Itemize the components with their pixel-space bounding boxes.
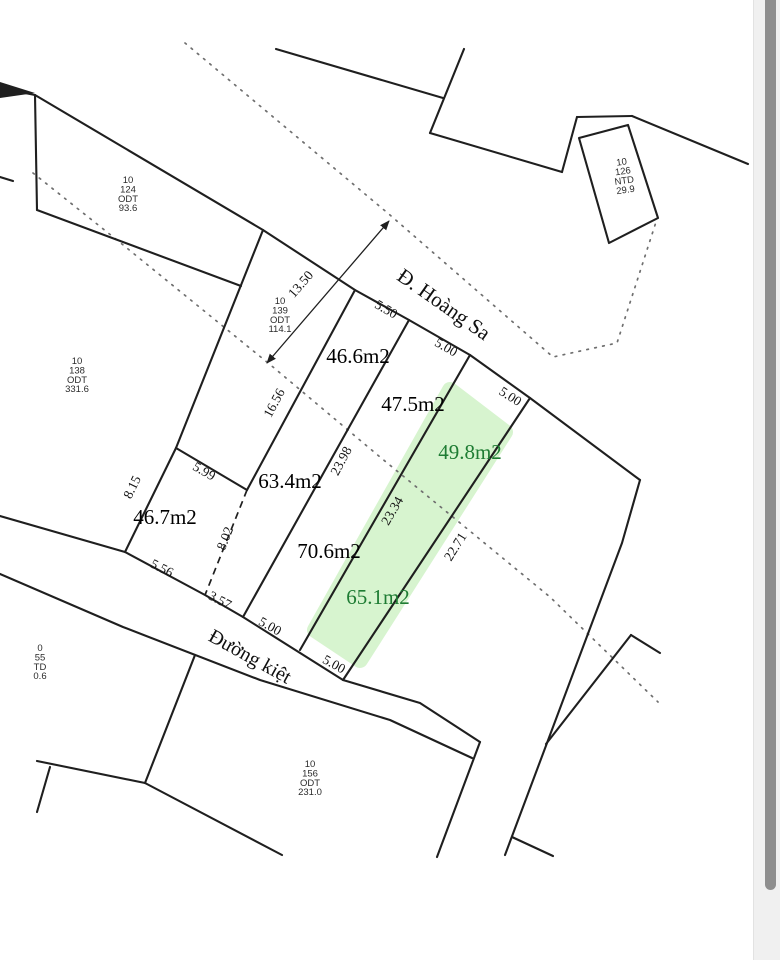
parcel-boundary-line — [145, 783, 282, 855]
area-label: 46.7m2 — [133, 505, 197, 529]
parcel-boundary-line — [577, 116, 632, 117]
measurement-label: 16.56 — [260, 386, 288, 420]
measurement-label: 5.99 — [190, 459, 218, 484]
parcel-boundary-line — [512, 837, 553, 856]
parcel-id-label: 10139ODT114.1 — [268, 296, 291, 335]
parcel-id-label: 10138ODT331.6 — [65, 356, 89, 395]
measurement-label: 5.00 — [496, 384, 524, 410]
measurement-label: 5.00 — [432, 335, 460, 360]
parcel-boundary-line — [145, 655, 195, 783]
measurement-label: 8.15 — [120, 473, 144, 501]
parcel-boundary-line — [276, 49, 443, 98]
parcel-id-label: 10124ODT93.6 — [118, 175, 138, 214]
cadastral-map-svg: 13.505.505.005.0016.5623.9823.3422.718.1… — [0, 0, 780, 960]
parcel-boundary-line — [430, 49, 464, 133]
parcel-boundary-line — [437, 742, 480, 857]
parcel-boundary-line — [632, 116, 748, 164]
parcel-boundary-line — [35, 95, 640, 480]
parcel-id-label: 10126NTD29.9 — [611, 156, 636, 198]
parcel-boundary-line — [37, 761, 145, 783]
scrollbar-track[interactable] — [753, 0, 780, 960]
area-label: 47.5m2 — [381, 392, 445, 416]
area-label: 65.1m2 — [346, 585, 410, 609]
cadastral-map-page: 13.505.505.005.0016.5623.9823.3422.718.1… — [0, 0, 780, 960]
parcel-id-label: 055TD0.6 — [33, 643, 46, 682]
area-label: 46.6m2 — [326, 344, 390, 368]
parcel-boundary-line — [37, 210, 241, 286]
area-label: 49.8m2 — [438, 440, 502, 464]
dotted-boundary-line — [185, 43, 656, 357]
area-label: 63.4m2 — [258, 469, 322, 493]
parcel-boundary-line — [546, 635, 631, 744]
parcel-boundary-line — [37, 767, 50, 812]
parcel-boundary-line — [631, 635, 660, 653]
measurement-label: 13.50 — [285, 267, 316, 300]
parcel-boundary-line — [505, 480, 640, 855]
parcel-boundary-line — [430, 133, 562, 172]
parcel-boundary-line — [35, 95, 37, 210]
parcel-boundary-line — [562, 117, 577, 172]
measurement-label: 5.50 — [372, 297, 400, 322]
parcel-boundary-line — [176, 230, 263, 448]
highlight-parcel — [315, 390, 505, 660]
measurement-label: 8.02 — [213, 525, 236, 553]
street-name-label: Đ. Hoàng Sa — [393, 263, 496, 345]
parcel-id-label: 10156ODT231.0 — [298, 759, 322, 798]
street-name-label: Đường kiệt — [205, 625, 296, 689]
scrollbar-thumb[interactable] — [765, 0, 776, 890]
area-label: 70.6m2 — [297, 539, 361, 563]
parcel-boundary-line — [0, 177, 13, 181]
edge-wedge — [0, 82, 35, 98]
